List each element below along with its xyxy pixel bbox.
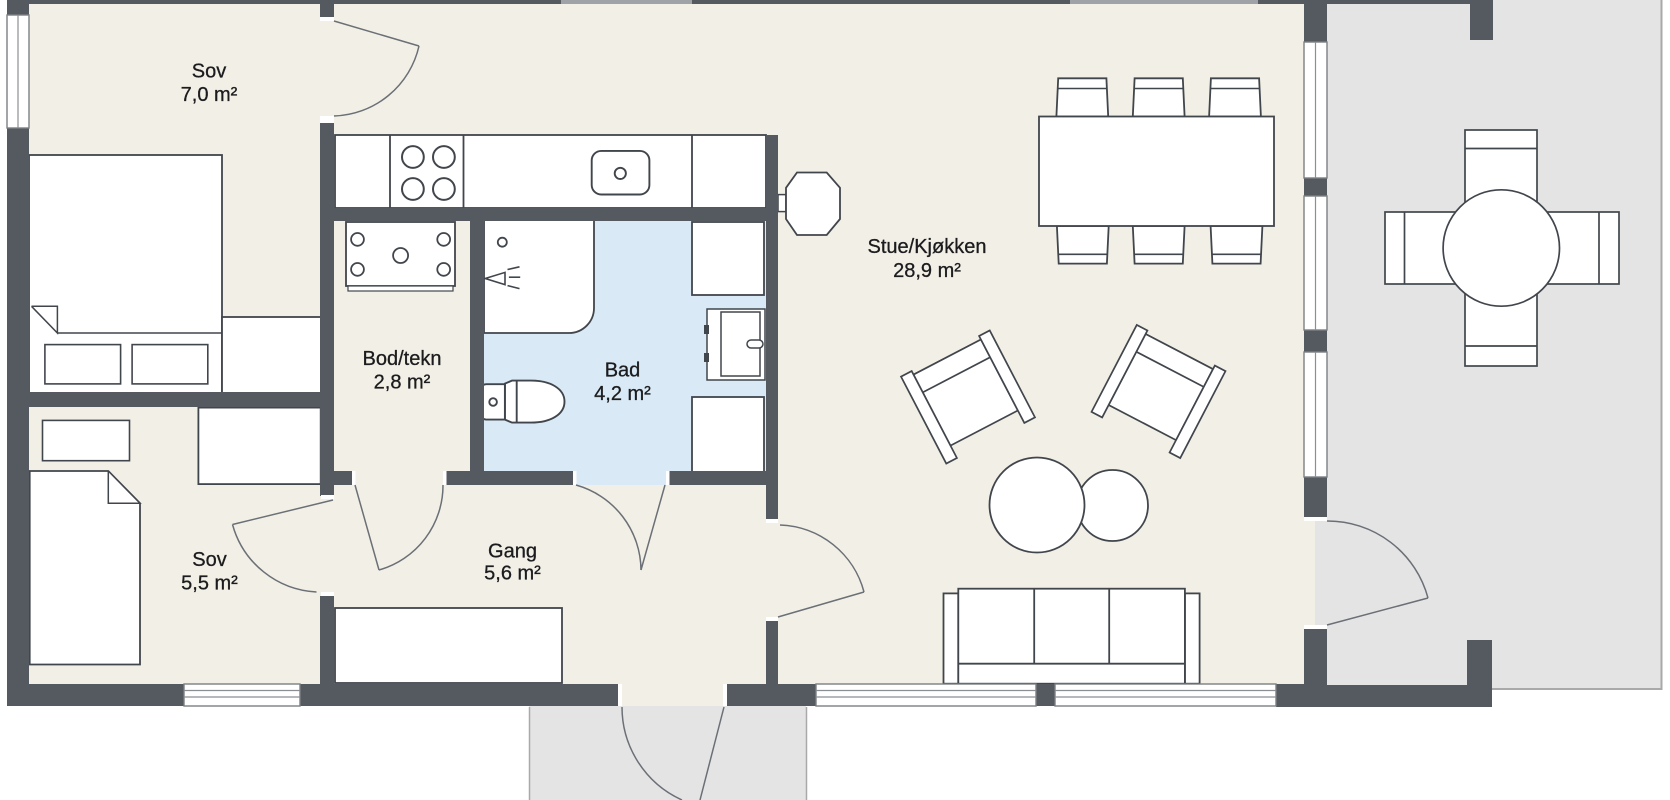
svg-text:Sov: Sov xyxy=(192,549,226,571)
svg-text:4,2 m²: 4,2 m² xyxy=(594,383,651,405)
svg-text:Stue/Kjøkken: Stue/Kjøkken xyxy=(868,236,987,258)
svg-text:28,9 m²: 28,9 m² xyxy=(893,260,961,282)
svg-text:5,6 m²: 5,6 m² xyxy=(484,563,541,585)
svg-text:7,0 m²: 7,0 m² xyxy=(181,84,238,106)
svg-text:2,8 m²: 2,8 m² xyxy=(374,372,431,394)
svg-text:Bad: Bad xyxy=(605,360,641,382)
svg-text:Sov: Sov xyxy=(192,61,226,83)
svg-text:5,5 m²: 5,5 m² xyxy=(181,573,238,595)
svg-text:Gang: Gang xyxy=(488,541,537,563)
svg-text:Bod/tekn: Bod/tekn xyxy=(363,348,442,370)
